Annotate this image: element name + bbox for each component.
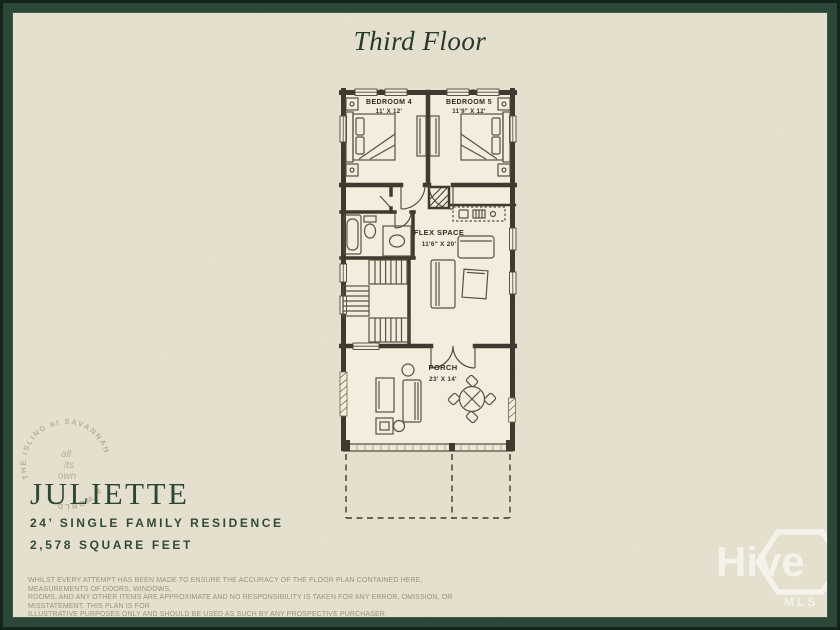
svg-text:BEDROOM 4: BEDROOM 4: [366, 99, 412, 106]
svg-text:11'9" X 12': 11'9" X 12': [452, 108, 486, 115]
disclaimer: WHILST EVERY ATTEMPT HAS BEEN MADE TO EN…: [28, 577, 468, 620]
floor-plan: BEDROOM 4 11' X 12' BEDROOM 5 11'9" X 12…: [339, 88, 517, 529]
svg-text:its: its: [64, 460, 74, 471]
floor-plan-flyer: Third Floor THE ISLING at SAVANNAH A WOR…: [0, 0, 840, 630]
hive-sub-text: MLS: [784, 595, 818, 609]
svg-text:23' X 14': 23' X 14': [429, 376, 457, 383]
plan-name: JULIETTE: [30, 478, 284, 509]
svg-text:all: all: [61, 449, 72, 460]
plan-type: 24’ SINGLE FAMILY RESIDENCE: [30, 517, 284, 531]
page-title: Third Floor: [0, 26, 840, 57]
roof-outline: [346, 454, 510, 518]
hive-brand-text: Hive: [716, 538, 805, 585]
svg-text:PORCH: PORCH: [428, 363, 457, 372]
disclaimer-line-3: ILLUSTRATIVE PURPOSES ONLY AND SHOULD BE…: [28, 611, 468, 620]
svg-text:11' X 12': 11' X 12': [376, 108, 403, 115]
disclaimer-line-2: ROOMS, AND ANY OTHER ITEMS ARE APPROXIMA…: [28, 594, 468, 611]
disclaimer-line-1: WHILST EVERY ATTEMPT HAS BEEN MADE TO EN…: [28, 577, 468, 594]
svg-text:FLEX SPACE: FLEX SPACE: [414, 228, 465, 237]
svg-text:11'6" X 20': 11'6" X 20': [422, 241, 457, 248]
hive-mls-watermark: Hive MLS: [708, 518, 840, 619]
plan-info-block: JULIETTE 24’ SINGLE FAMILY RESIDENCE 2,5…: [30, 478, 284, 553]
svg-text:BEDROOM 5: BEDROOM 5: [446, 99, 492, 106]
plan-area: 2,578 SQUARE FEET: [30, 539, 284, 553]
